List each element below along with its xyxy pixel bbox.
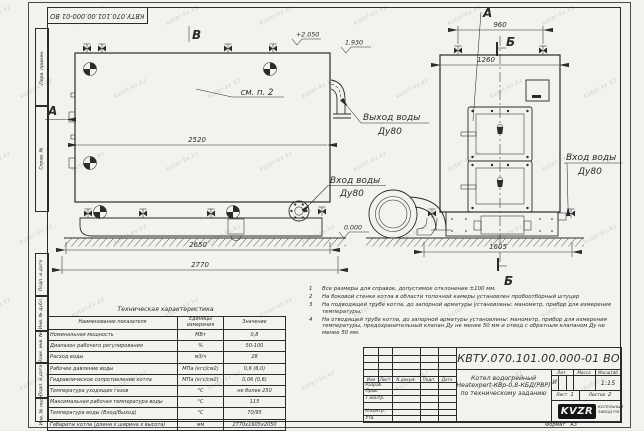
view-arrow-label-a: А	[47, 104, 57, 118]
tech-table-title: Техническая характеристика	[47, 306, 284, 313]
svg-text:Выход воды: Выход воды	[363, 113, 420, 123]
title-block: КВТУ.070.101.00.000-01 ВО Изм Лист N док…	[363, 347, 622, 423]
table-row: Максимальная рабочая температура воды°С1…	[48, 397, 286, 408]
col-data: Дата	[438, 376, 456, 382]
mass-header: Масса	[573, 369, 595, 375]
door-lock-icon	[497, 124, 503, 134]
table-row: Диапазон рабочего регулирования%50-100	[48, 341, 286, 352]
staff-razrab: Разраб.	[364, 382, 394, 389]
water-inlet-label-front: Вход воды Ду80	[564, 153, 622, 206]
staff-utv: Утв.	[364, 415, 394, 422]
col-podp: Подп.	[420, 376, 438, 382]
elevation-mark-mid: 1.930	[341, 40, 371, 54]
staff-tkontr: Т.контр.	[364, 395, 394, 402]
side-view-boiler: 2520 2650 2770 В А см. п. 2	[45, 12, 481, 274]
elevation-mark-zero: 0.000	[339, 225, 369, 239]
section-mark-b-bottom: Б	[498, 258, 513, 288]
svg-text:2520: 2520	[188, 136, 206, 144]
lifting-point-icon	[84, 63, 277, 219]
staff-prov: Пров.	[364, 389, 394, 396]
svg-text:Ду80: Ду80	[577, 167, 602, 177]
elevation-mark-top: +2.050	[292, 32, 321, 46]
lit-value: И	[551, 375, 558, 390]
svg-text:см. п. 2: см. п. 2	[241, 88, 274, 98]
col-header-name: Наименование показателя	[48, 317, 178, 330]
outlet-elbow-pipe	[331, 80, 351, 118]
svg-text:1.930: 1.930	[345, 40, 363, 47]
water-inlet-label-side: Вход воды Ду80	[310, 176, 386, 204]
front-base	[446, 212, 558, 236]
upper-furnace-door	[461, 107, 532, 161]
door-handle	[461, 185, 476, 189]
door-lock-icon	[497, 177, 503, 187]
format-label: ФорматА3	[545, 422, 582, 428]
drawing-sheet: kotel-kv.kzkotel-kv.kzkotel-kv.kzkotel-k…	[0, 0, 644, 430]
svg-text:Вход воды: Вход воды	[330, 176, 380, 186]
table-row: Гидравлическое сопротивление котлаМПа (к…	[48, 374, 286, 385]
sheet-cell: Лист 1	[551, 390, 579, 400]
table-header-row: Наименование показателя Единицы измерени…	[48, 317, 286, 330]
col-header-value: Значение	[224, 317, 286, 330]
staff-nkontr: Н.контр.	[364, 409, 394, 416]
sheets-cell: Листов 2	[579, 390, 621, 400]
svg-text:+2.050: +2.050	[296, 32, 319, 39]
base-skid	[80, 218, 322, 241]
note-item: 2На боковой стенке котла в области топоч…	[302, 294, 618, 301]
dimension-2520: 2520	[78, 136, 327, 145]
kvzr-logo: KVZR	[558, 404, 596, 419]
view-label-a: А	[482, 6, 492, 20]
blower-fan	[369, 190, 451, 238]
scale-value: 1:15	[595, 375, 621, 390]
section-mark-b-top: Б	[497, 35, 515, 56]
svg-text:1605: 1605	[489, 243, 507, 251]
table-row: Температура воды (Вход/Выход)°С70/95	[48, 408, 286, 419]
table-row: Рабочее давление водыМПа (кгс/см2)0,6 (6…	[48, 363, 286, 374]
dimension-960: 960	[458, 21, 543, 44]
col-ndokum: N докум.	[392, 376, 420, 382]
water-outlet-label: Выход воды Ду80	[348, 12, 481, 137]
table-row: Расход водым3/ч28	[48, 352, 286, 363]
document-name: Котел водогрейный Heatexpert-КВр-0,8-КБД…	[456, 369, 551, 403]
top-rotated-stamp: КВТУ.070.101.00.000-01 ВО	[47, 7, 148, 24]
svg-text:960: 960	[493, 21, 507, 29]
svg-text:Ду80: Ду80	[377, 127, 402, 137]
document-number: КВТУ.070.101.00.000-01 ВО	[456, 348, 621, 369]
table-row: Температура уходящих газов°Сне более 250	[48, 385, 286, 396]
table-row: Номинальная мощностьМВт0,8	[48, 330, 286, 341]
note-item: 4На отводящей трубе котла, до запорной а…	[302, 317, 618, 337]
svg-text:Ду80: Ду80	[339, 189, 364, 199]
logo-caption: КОТЕЛЬНЫЙ ЗАВОД РЭП	[598, 405, 623, 414]
svg-text:Б: Б	[506, 35, 515, 49]
svg-text:0.000: 0.000	[344, 225, 362, 232]
lower-furnace-door	[461, 161, 532, 212]
svg-text:2770: 2770	[191, 261, 209, 269]
table-row: Габариты котла (длина х ширина х высота)…	[48, 419, 286, 430]
notes-list: 1Все размеры для справок, допустимое отк…	[302, 286, 618, 338]
door-handle	[461, 132, 476, 136]
note-item: 1Все размеры для справок, допустимое отк…	[302, 286, 618, 293]
see-note-callout: см. п. 2	[196, 88, 284, 98]
dimension-2770: 2770	[62, 256, 338, 274]
air-valve-icon	[83, 44, 277, 53]
staff-blank	[364, 402, 394, 409]
top-stamp-number: КВТУ.070.101.00.000-01 ВО	[50, 12, 144, 20]
svg-text:Вход воды: Вход воды	[566, 153, 616, 163]
svg-text:1260: 1260	[477, 56, 495, 64]
tech-characteristics-table: Наименование показателя Единицы измерени…	[47, 316, 286, 431]
air-valve-icon	[454, 46, 547, 55]
note-item: 3На подводящей трубе котла, до запорной …	[302, 302, 618, 315]
view-label-b: В	[192, 28, 201, 42]
col-header-units: Единицы измерения	[178, 317, 224, 330]
